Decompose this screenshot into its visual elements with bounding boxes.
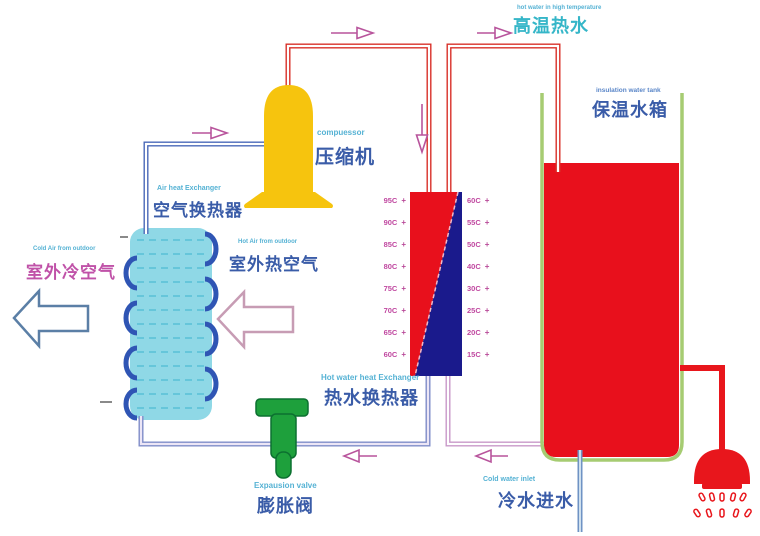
hot-water-exchanger-label-en: Hot water heat Exchanger <box>321 373 419 382</box>
temp-row: 80C+ <box>372 256 406 278</box>
hot-water-heat-exchanger-shape <box>410 192 462 376</box>
temp-row: 65C+ <box>372 322 406 344</box>
compressor-label-zh: 压缩机 <box>315 142 375 169</box>
water-return-pipe <box>448 374 545 444</box>
shower-pipe <box>680 368 722 452</box>
hot-air-in-arrow <box>218 292 293 347</box>
exchanger-left-temperature-scale: 95C+ 90C+ 85C+ 80C+ 75C+ 70C+ 65C+ 60C+ <box>372 190 406 366</box>
shower-spray <box>693 493 752 518</box>
temp-row: 95C+ <box>372 190 406 212</box>
temp-row: 25C+ <box>467 300 501 322</box>
expansion-valve-shape <box>256 399 308 478</box>
temp-row: 50C+ <box>467 234 501 256</box>
temp-row: 15C+ <box>467 344 501 366</box>
temp-row: 55C+ <box>467 212 501 234</box>
temp-row: 20C+ <box>467 322 501 344</box>
temp-row: 90C+ <box>372 212 406 234</box>
expansion-valve-label-en: Expausion valve <box>254 481 317 490</box>
temp-row: 85C+ <box>372 234 406 256</box>
outdoor-hot-air-label-en: Hot Air from outdoor <box>238 239 297 245</box>
outdoor-hot-air-label-zh: 室外热空气 <box>229 250 319 275</box>
temp-row: 60C+ <box>372 344 406 366</box>
exchanger-right-temperature-scale: 60C+ 55C+ 50C+ 40C+ 30C+ 25C+ 20C+ 15C+ <box>467 190 501 366</box>
shower-head <box>694 449 750 489</box>
outdoor-cold-air-label-en: Cold Air from outdoor <box>33 246 95 252</box>
cold-water-inlet-label-zh: 冷水进水 <box>498 487 574 513</box>
temp-row: 40C+ <box>467 256 501 278</box>
heat-pump-diagram: hot water in high temperature 高温热水 insul… <box>0 0 760 536</box>
temp-row: 60C+ <box>467 190 501 212</box>
temp-row: 75C+ <box>372 278 406 300</box>
hot-water-exchanger-label-zh: 热水换热器 <box>324 384 419 410</box>
cold-air-out-arrow <box>14 291 88 346</box>
temp-row: 70C+ <box>372 300 406 322</box>
water-tank-label-en: insulation water tank <box>596 87 661 94</box>
air-heat-exchanger-label-zh: 空气换热器 <box>153 196 243 221</box>
compressor-label-en: compuessor <box>317 128 365 137</box>
water-tank-label-zh: 保温水箱 <box>592 96 668 122</box>
water-tank-shape <box>542 93 682 460</box>
temp-row: 30C+ <box>467 278 501 300</box>
air-heat-exchanger-coil <box>100 228 216 420</box>
hot-water-outlet-label-en: hot water in high temperature <box>517 5 601 11</box>
air-heat-exchanger-label-en: Air heat Exchanger <box>157 185 221 192</box>
expansion-valve-label-zh: 膨胀阀 <box>257 492 314 518</box>
hot-water-outlet-label-zh: 高温热水 <box>513 12 589 38</box>
outdoor-cold-air-label-zh: 室外冷空气 <box>26 258 116 283</box>
cold-water-inlet-label-en: Cold water inlet <box>483 476 535 483</box>
